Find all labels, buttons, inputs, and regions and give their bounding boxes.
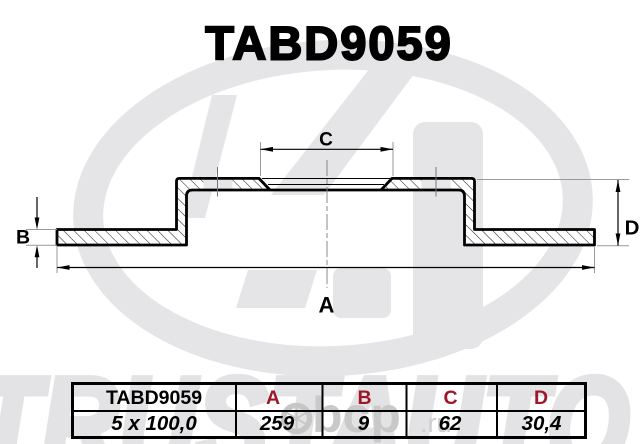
svg-text:C: C: [319, 130, 333, 151]
svg-text:A: A: [266, 387, 280, 409]
svg-text:5 x 100,0: 5 x 100,0: [111, 412, 197, 435]
svg-text:259: 259: [259, 412, 295, 435]
svg-text:9: 9: [358, 412, 370, 435]
svg-text:bcp: bcp: [312, 387, 401, 443]
svg-text:TABD9059: TABD9059: [205, 17, 453, 70]
svg-text:B: B: [357, 387, 371, 409]
svg-text:D: D: [625, 217, 640, 240]
svg-text:B: B: [16, 227, 30, 249]
svg-text:C: C: [443, 387, 457, 409]
svg-text:62: 62: [439, 412, 462, 435]
svg-text:TABD9059: TABD9059: [106, 387, 202, 409]
svg-text:A: A: [319, 293, 335, 318]
svg-text:D: D: [534, 387, 548, 409]
svg-text:30,4: 30,4: [522, 412, 562, 435]
